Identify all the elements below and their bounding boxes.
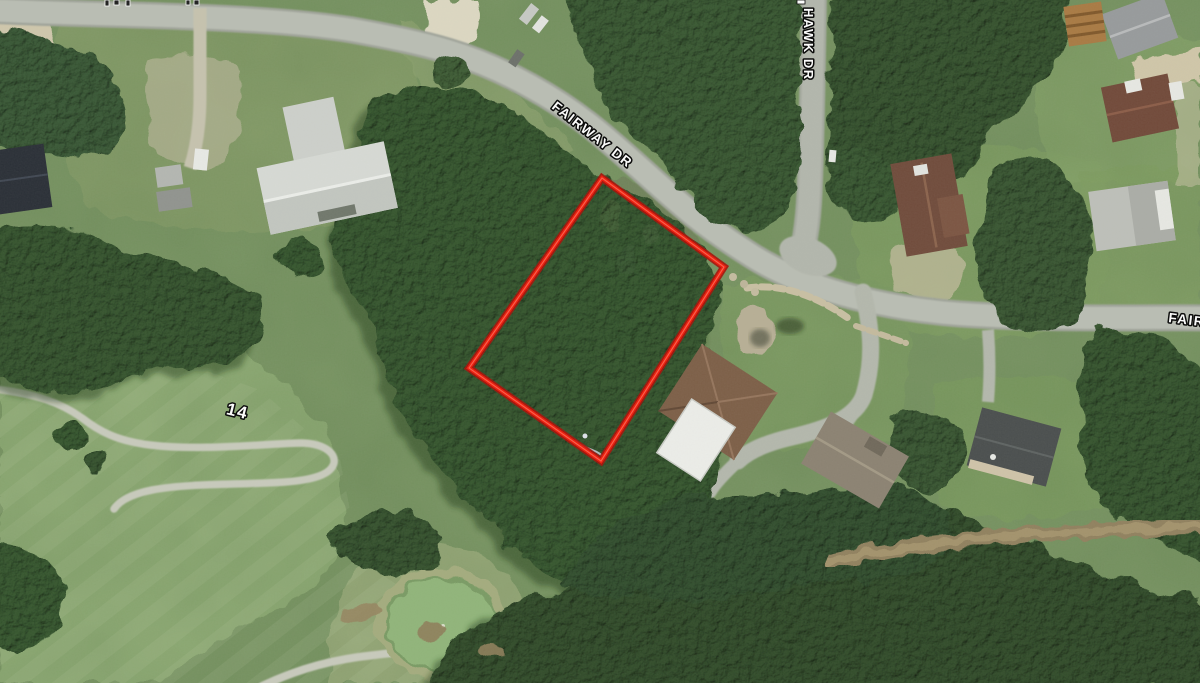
photo-grain-overlay bbox=[0, 0, 1200, 683]
satellite-map[interactable]: FAIRWAY DR HAWK DR FAIR 14 bbox=[0, 0, 1200, 683]
